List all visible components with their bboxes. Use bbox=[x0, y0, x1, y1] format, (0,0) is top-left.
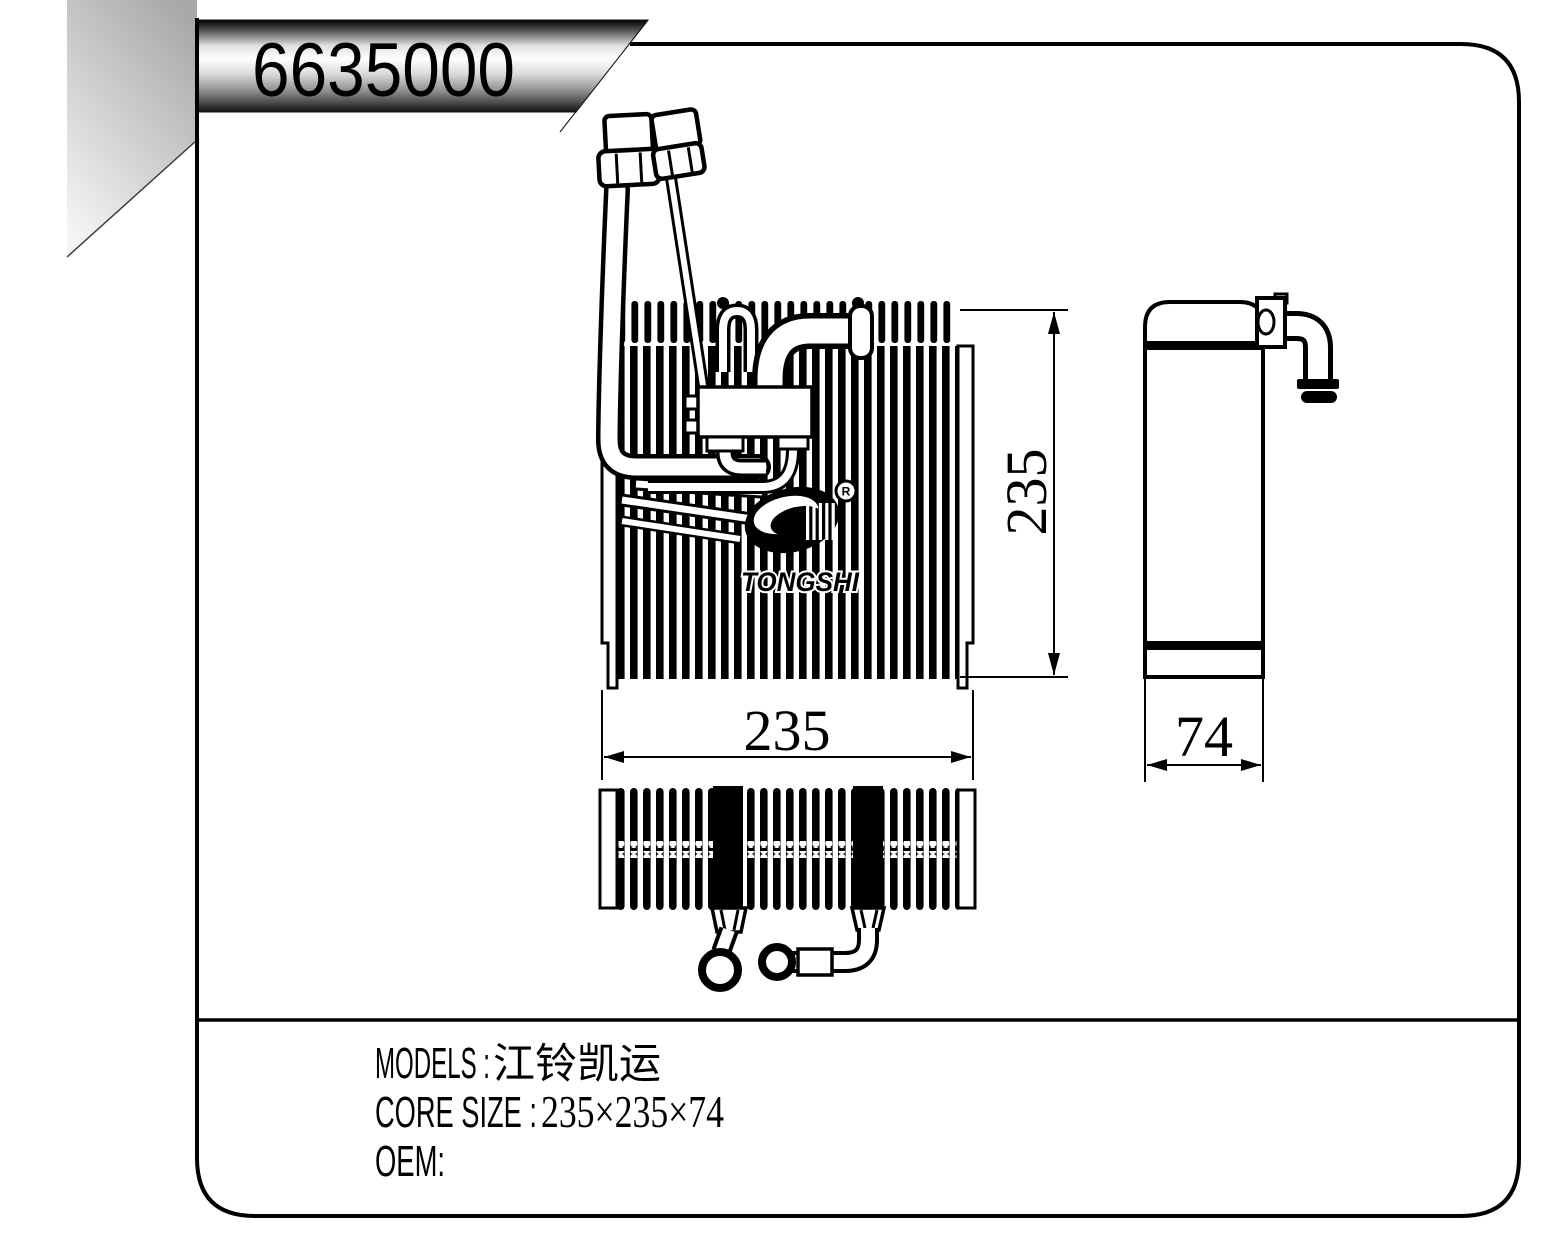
bottom-port-left bbox=[702, 908, 746, 988]
part-number: 6635000 bbox=[252, 28, 515, 113]
pipe-end-flange bbox=[850, 306, 872, 358]
width-dim-text: 235 bbox=[744, 698, 831, 763]
side-fitting-block bbox=[1257, 294, 1287, 347]
outlet-fitting bbox=[647, 109, 705, 180]
tube-row-left bbox=[713, 786, 743, 912]
side-plate-right bbox=[958, 346, 973, 688]
models-value: 江铃凯运 bbox=[493, 1039, 661, 1088]
spec-models-row: MODELS : 江铃凯运 bbox=[375, 1039, 661, 1088]
side-pipe-elbow bbox=[1283, 326, 1339, 403]
logo-brand-text: TONGSHI bbox=[741, 567, 859, 597]
part-number-banner: 6635000 bbox=[197, 20, 648, 132]
side-bottom-band bbox=[1147, 641, 1261, 650]
oem-label: OEM: bbox=[375, 1137, 445, 1186]
side-view bbox=[1145, 294, 1339, 677]
spec-core-size-row: CORE SIZE : 235×235×74 bbox=[375, 1086, 724, 1137]
arrow-left-icon bbox=[604, 751, 624, 763]
bottom-fins bbox=[617, 786, 958, 912]
height-dim-text: 235 bbox=[994, 449, 1059, 536]
bottom-view bbox=[600, 786, 975, 988]
depth-dim-text: 74 bbox=[1175, 704, 1233, 769]
bottom-port-right bbox=[762, 908, 884, 977]
technical-drawing: 6635000 bbox=[0, 0, 1560, 1245]
spec-oem-row: OEM: bbox=[375, 1137, 445, 1186]
tube-row-right bbox=[853, 786, 883, 912]
dimension-depth: 74 bbox=[1145, 677, 1263, 782]
registered-mark-letter: R bbox=[842, 485, 851, 499]
core-size-label: CORE SIZE : bbox=[375, 1088, 537, 1137]
arrow-up-icon bbox=[1048, 312, 1060, 334]
bottom-plate-right bbox=[958, 790, 975, 908]
spec-block: MODELS : 江铃凯运 CORE SIZE : 235×235×74 OEM… bbox=[375, 1039, 724, 1186]
arrow-left-icon bbox=[1147, 759, 1167, 771]
front-view: R TONGSHI bbox=[596, 109, 973, 688]
arrow-right-icon bbox=[951, 751, 971, 763]
corner-fold bbox=[67, 0, 197, 257]
side-top-band bbox=[1147, 341, 1261, 350]
core-size-value: 235×235×74 bbox=[541, 1086, 724, 1137]
dimension-width: 235 bbox=[602, 690, 973, 780]
arrow-right-icon bbox=[1241, 759, 1261, 771]
drawing-sheet: 6635000 bbox=[0, 0, 1560, 1245]
dimension-height: 235 bbox=[960, 310, 1068, 677]
models-label: MODELS : bbox=[375, 1039, 490, 1088]
arrow-down-icon bbox=[1048, 653, 1060, 675]
bottom-plate-left bbox=[600, 790, 617, 908]
